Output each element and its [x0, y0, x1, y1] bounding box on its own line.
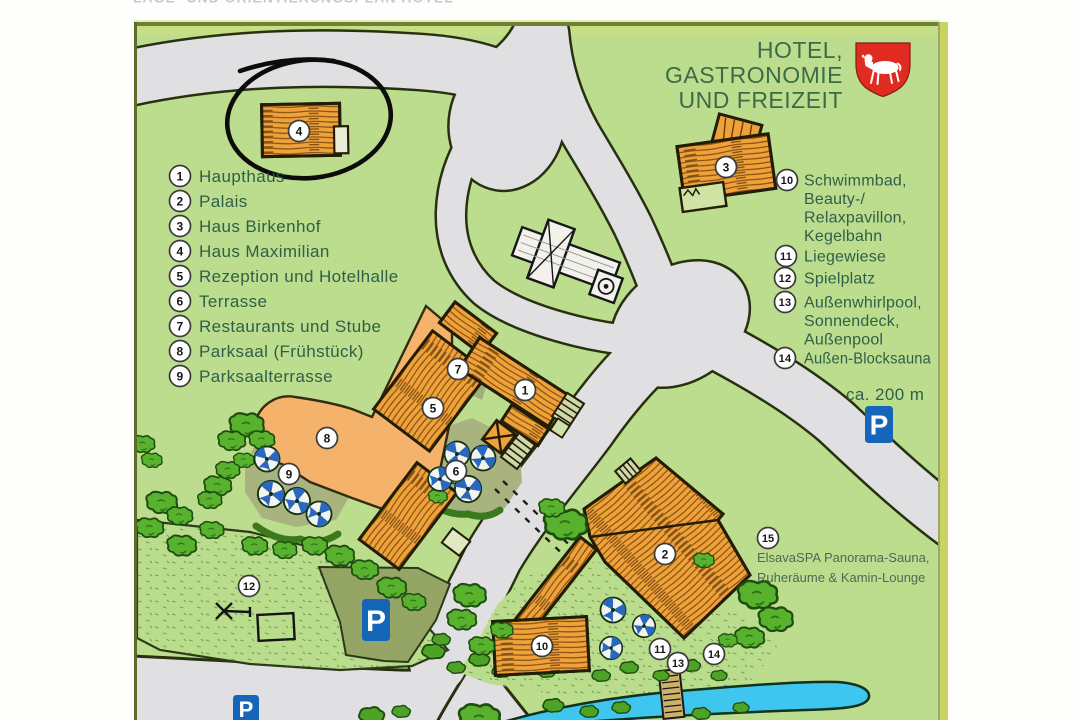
svg-text:Relaxpavillon,: Relaxpavillon,: [804, 210, 906, 227]
svg-text:Restaurants und Stube: Restaurants und Stube: [199, 317, 381, 336]
svg-text:Sonnendeck,: Sonnendeck,: [804, 313, 900, 330]
svg-text:14: 14: [708, 649, 721, 661]
svg-text:11: 11: [654, 644, 666, 656]
svg-text:3: 3: [723, 160, 730, 174]
svg-text:Außenwhirlpool,: Außenwhirlpool,: [804, 295, 922, 312]
svg-text:12: 12: [779, 273, 792, 285]
svg-text:Beauty-/: Beauty-/: [804, 191, 866, 208]
svg-text:8: 8: [324, 431, 331, 445]
svg-text:4: 4: [176, 244, 183, 258]
svg-text:Haus Birkenhof: Haus Birkenhof: [199, 217, 321, 236]
svg-text:2: 2: [176, 194, 183, 208]
svg-text:9: 9: [286, 467, 293, 481]
svg-text:7: 7: [455, 362, 462, 376]
svg-text:Terrasse: Terrasse: [199, 292, 267, 311]
svg-text:Haupthaus: Haupthaus: [199, 167, 285, 186]
svg-text:2: 2: [662, 547, 669, 561]
svg-text:Palais: Palais: [199, 192, 248, 211]
svg-text:Schwimmbad,: Schwimmbad,: [804, 173, 907, 190]
svg-text:7: 7: [176, 319, 183, 333]
svg-text:3: 3: [176, 219, 183, 233]
svg-text:Außenpool: Außenpool: [804, 332, 883, 349]
svg-text:P: P: [366, 605, 386, 638]
svg-text:10: 10: [536, 641, 548, 653]
svg-text:6: 6: [453, 464, 460, 478]
svg-text:5: 5: [176, 269, 183, 283]
svg-text:Liegewiese: Liegewiese: [804, 249, 886, 266]
svg-text:14: 14: [779, 353, 792, 365]
svg-text:P: P: [239, 697, 254, 720]
svg-text:Kegelbahn: Kegelbahn: [804, 228, 882, 245]
svg-text:GASTRONOMIE: GASTRONOMIE: [665, 62, 843, 88]
svg-text:HOTEL,: HOTEL,: [757, 37, 843, 63]
svg-text:LAGE- UND ORIENTIERUNGSPLAN HO: LAGE- UND ORIENTIERUNGSPLAN HOTEL: [133, 0, 454, 6]
svg-text:1: 1: [176, 169, 183, 183]
svg-text:1: 1: [522, 383, 529, 397]
svg-text:ca. 200 m: ca. 200 m: [846, 385, 924, 404]
svg-text:8: 8: [176, 344, 183, 358]
svg-text:Parksaalterrasse: Parksaalterrasse: [199, 367, 333, 386]
svg-text:Ruheräume & Kamin-Lounge: Ruheräume & Kamin-Lounge: [757, 570, 925, 585]
svg-text:15: 15: [762, 533, 774, 545]
svg-text:P: P: [870, 410, 889, 441]
svg-text:Rezeption und Hotelhalle: Rezeption und Hotelhalle: [199, 267, 399, 286]
svg-text:6: 6: [176, 294, 183, 308]
svg-text:10: 10: [781, 175, 794, 187]
svg-text:13: 13: [779, 297, 792, 309]
svg-text:Parksaal (Frühstück): Parksaal (Frühstück): [199, 342, 364, 361]
svg-text:4: 4: [296, 124, 303, 138]
svg-text:Haus Maximilian: Haus Maximilian: [199, 242, 330, 261]
svg-text:Spielplatz: Spielplatz: [804, 271, 875, 288]
svg-text:UND FREIZEIT: UND FREIZEIT: [679, 87, 843, 113]
svg-text:Außen-Blocksauna: Außen-Blocksauna: [804, 351, 931, 368]
svg-text:12: 12: [243, 581, 255, 593]
svg-text:13: 13: [672, 658, 684, 670]
svg-text:ElsavaSPA Panorama-Sauna,: ElsavaSPA Panorama-Sauna,: [757, 550, 929, 565]
svg-text:11: 11: [780, 251, 792, 263]
svg-text:5: 5: [430, 401, 437, 415]
svg-text:9: 9: [176, 369, 183, 383]
